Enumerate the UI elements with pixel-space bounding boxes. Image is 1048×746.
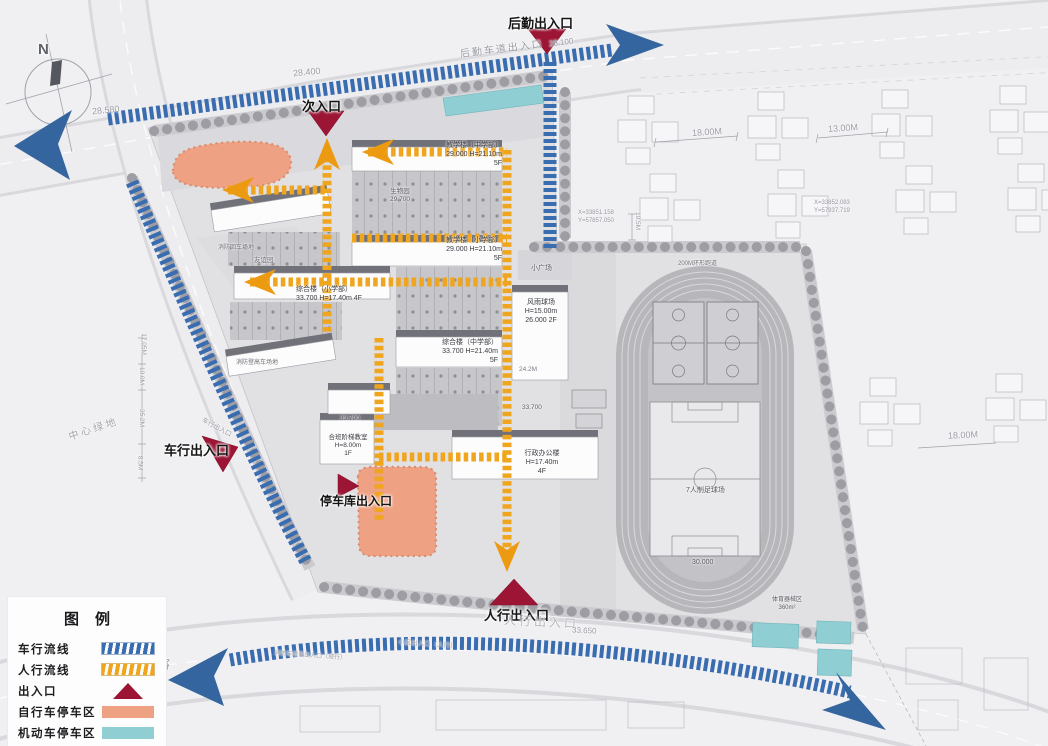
entrance-triangle-swatch [113,683,143,699]
fengyu-court-building [512,285,568,380]
pedestrian-flow-swatch [102,664,154,675]
legend-label-bike-parking: 自行车停车区 [18,704,96,720]
site-plan: 后勤出入口次入口车行出入口停车库出入口人行出入口后勤车道出入口28.10028.… [0,0,1048,746]
legend-label-entrance: 出入口 [18,683,57,699]
legend-item-motor-parking: 机动车停车区 [8,722,166,743]
legend-label-vehicle-flow: 车行流线 [18,641,70,657]
legend-item-vehicle-flow: 车行流线 [8,638,166,659]
legend-label-pedestrian-flow: 人行流线 [18,662,70,678]
vehicle-flow-swatch [102,643,154,654]
legend-label-motor-parking: 机动车停车区 [18,725,96,741]
legend-item-entrance: 出入口 [8,680,166,701]
legend-item-bike-parking: 自行车停车区 [8,701,166,722]
motor-parking-swatch [102,727,154,739]
heban-classroom-building [320,413,374,464]
legend-title: 图例 [8,597,166,638]
bike-parking-north [173,142,291,188]
bike-parking-swatch [102,706,154,718]
legend-panel: 图例 车行流线 人行流线 出入口 自行车停车区 机动车停车区 [8,597,166,746]
legend-item-pedestrian-flow: 人行流线 [8,659,166,680]
zonghe-middle-building [396,330,502,367]
small-plaza-paving [518,250,572,280]
bike-parking-south [358,467,436,556]
